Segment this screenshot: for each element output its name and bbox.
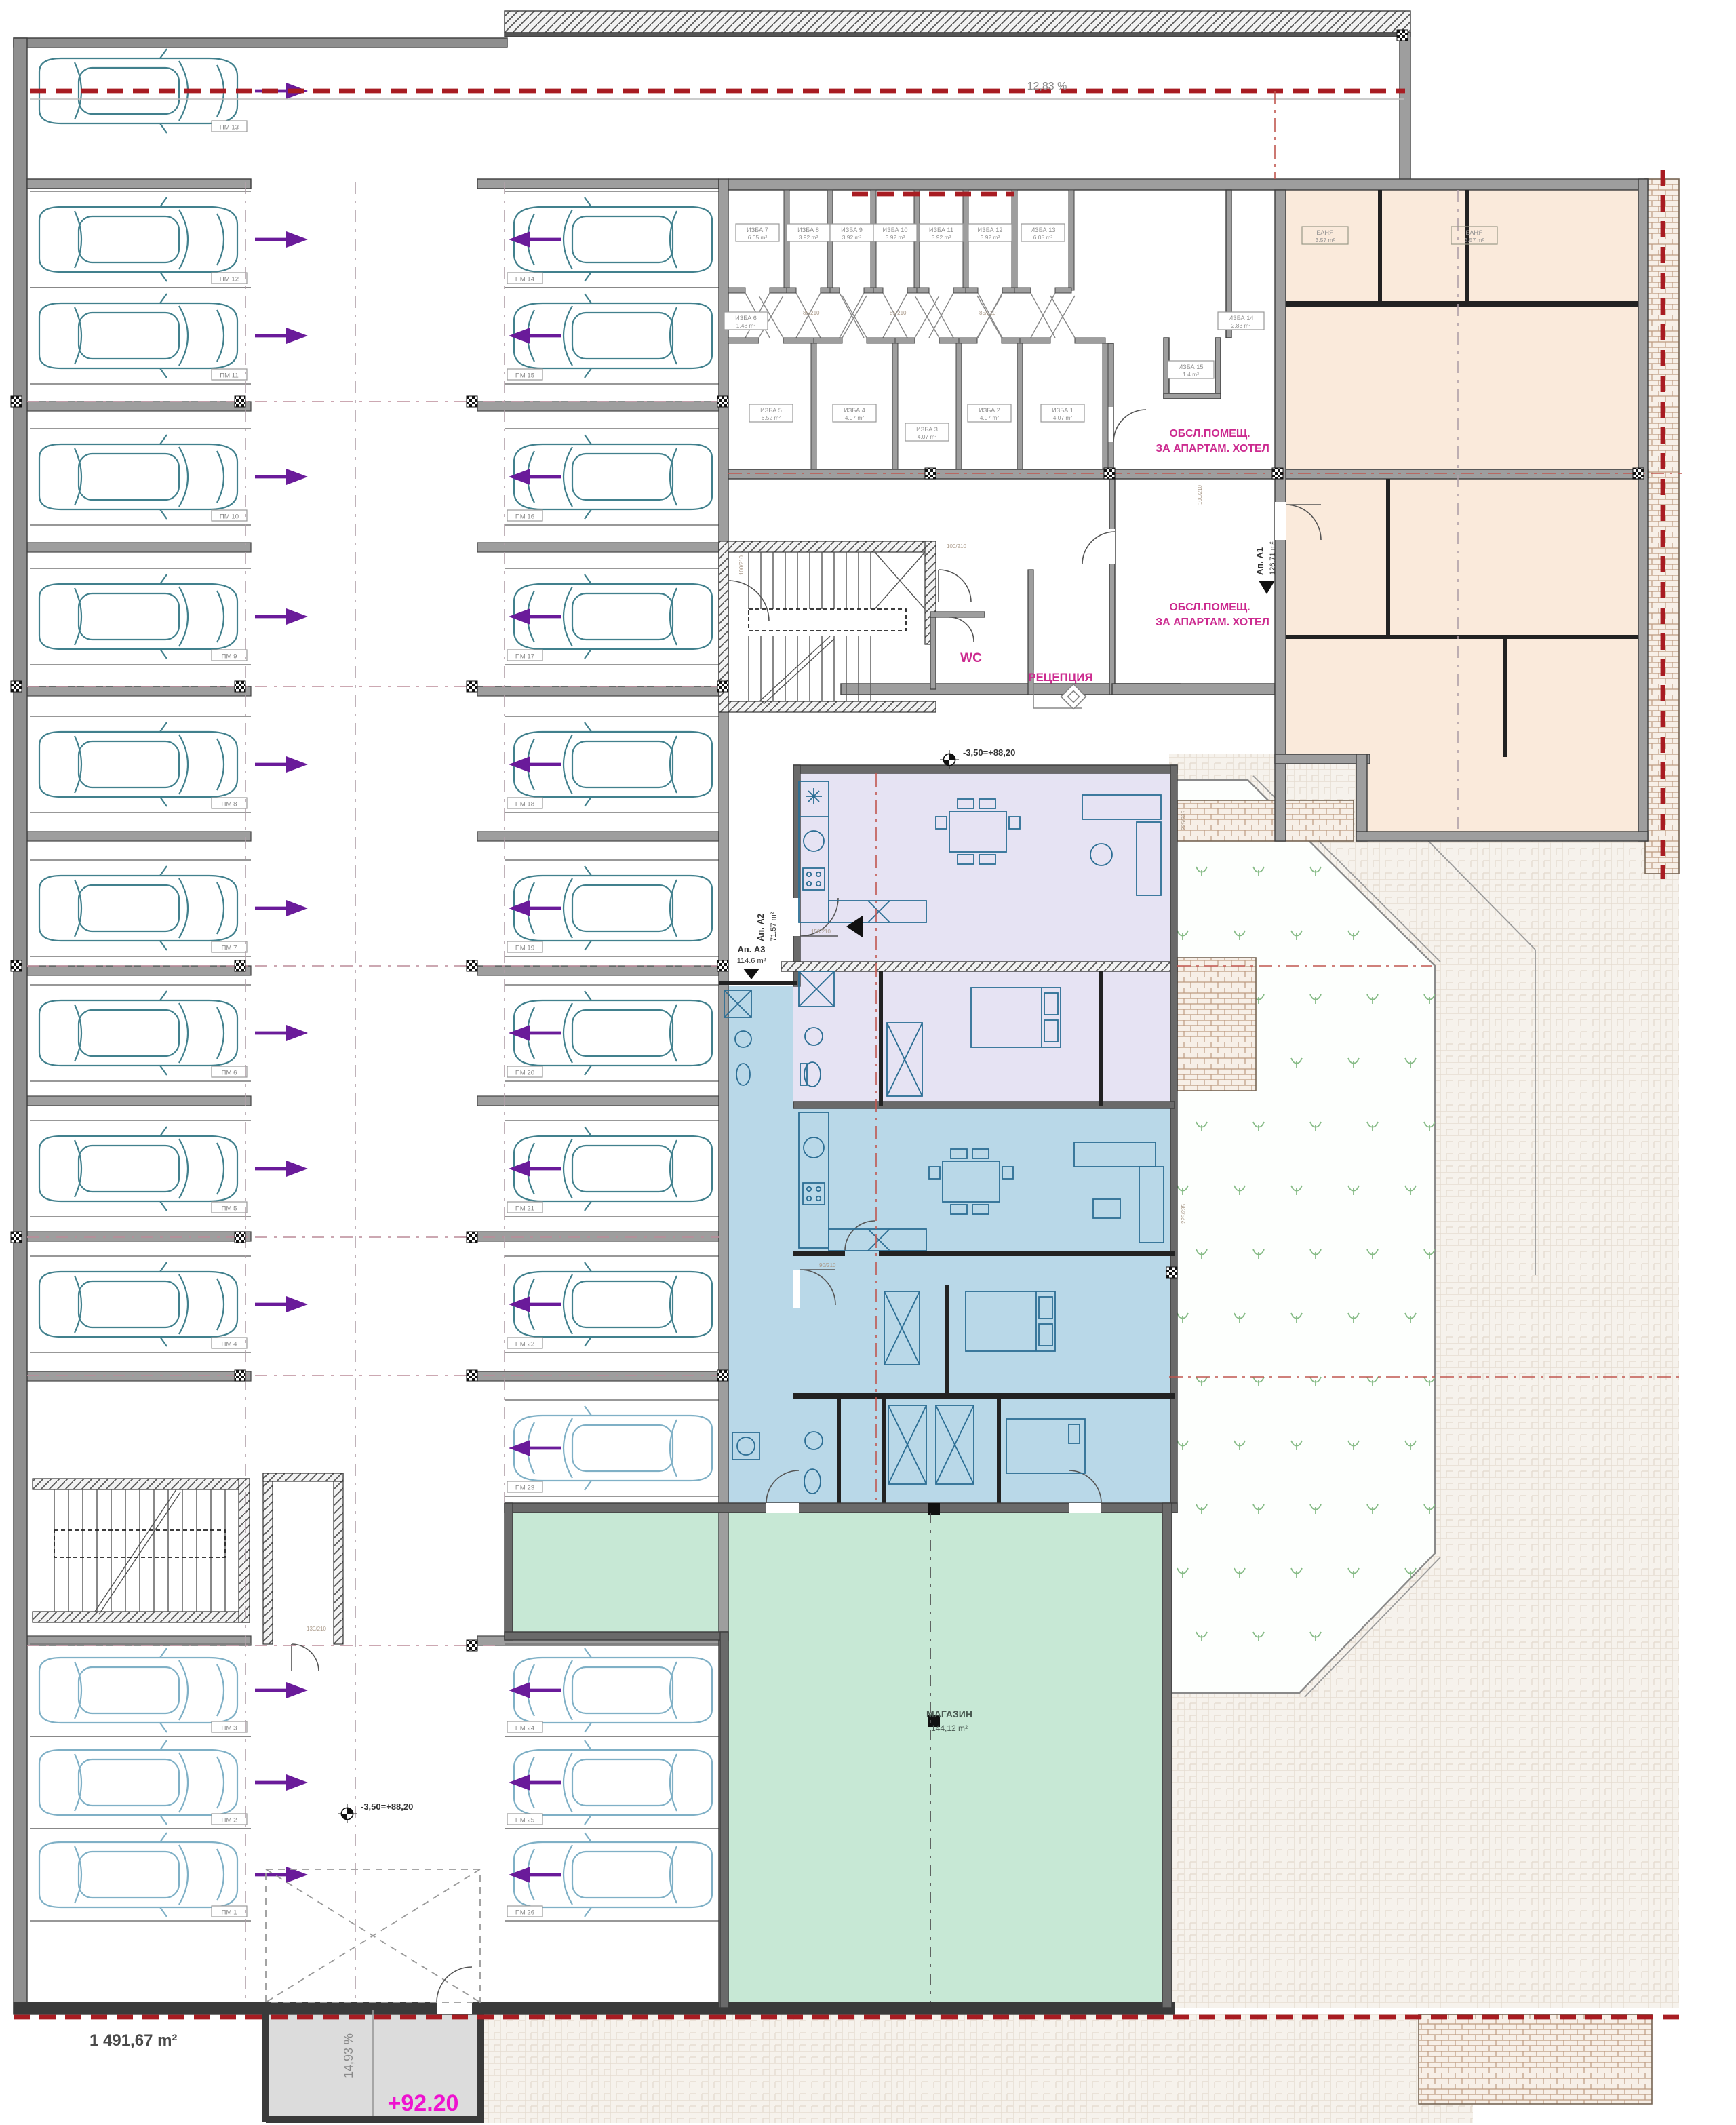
stall-label: ПМ 1 (222, 1909, 237, 1916)
a1-extension-south-wall (1356, 832, 1648, 841)
a2-a3-divider-wall (793, 1102, 1175, 1108)
stall-label: ПМ 3 (222, 1724, 237, 1732)
stall-label: ПМ 26 (515, 1909, 534, 1916)
brick-patch-3 (1419, 2014, 1652, 2104)
apartment-a1-bottom-wall (1275, 754, 1370, 764)
slope-top-label: 12,83 % (1027, 81, 1067, 92)
ramp-top-wall-edge (505, 33, 1410, 37)
garage-wall-stub (27, 402, 251, 411)
storage-wall (814, 338, 842, 343)
storage-wall (1012, 190, 1017, 290)
storage-wall (770, 288, 787, 293)
izba15-wall-right (1215, 338, 1221, 399)
storage-room-area: 3.92 m² (886, 234, 905, 241)
storage-room-area: 4.07 m² (980, 414, 1000, 421)
storage-wall (1002, 338, 1020, 343)
stall-label: ПМ 13 (220, 123, 239, 131)
apartment-a1-extension-fill (1364, 757, 1640, 833)
svg-text:130/210: 130/210 (307, 1626, 326, 1632)
street-level-label: +92.20 (388, 2090, 459, 2116)
apartment-a1-area: 126.71 m² (1269, 541, 1277, 575)
shop-column-top (928, 1503, 940, 1515)
storage-room-area: 3.92 m² (932, 234, 951, 241)
svg-text:225/235: 225/235 (1181, 1204, 1187, 1224)
slope-bottom-label: 14,93 % (342, 2033, 355, 2078)
garage-wall-stub (27, 686, 251, 696)
brick-patch-1 (1177, 800, 1354, 841)
storage-room-area: 4.07 m² (918, 433, 937, 440)
garage-wall-stub (27, 966, 251, 975)
svg-text:100/210: 100/210 (1197, 485, 1203, 505)
stall-label: ПМ 12 (220, 275, 239, 283)
garage-wall-stub (477, 686, 719, 696)
storage-wall (966, 288, 978, 293)
storage-room-name: ИЗБА 5 (760, 407, 782, 414)
garage-wall-stub (27, 832, 251, 841)
apartment-a3-area: 114.6 m² (737, 957, 766, 965)
storage-wall (821, 288, 830, 293)
apartment-a2-area: 71.57 m² (770, 912, 778, 941)
stall-label: ПМ 15 (515, 372, 534, 379)
storage-room-name: ИЗБА 12 (978, 227, 1003, 233)
ramp-top-hatched-wall (505, 11, 1410, 33)
svg-text:85/210: 85/210 (979, 310, 996, 316)
garage-wall-stub (477, 832, 719, 841)
apartment-a3-name: Ап. А3 (737, 944, 765, 954)
stall-label: ПМ 4 (222, 1340, 238, 1348)
storage-wall (728, 338, 759, 343)
storage-wall (892, 343, 898, 469)
wall-ramp-right (1400, 33, 1410, 182)
apartment-a1-name: Ап. А1 (1255, 547, 1265, 575)
garage-wall-stub (477, 966, 719, 975)
garage-wall-stub (477, 543, 719, 552)
storage-wall (895, 338, 915, 343)
garage-wall-stub (477, 402, 719, 411)
storage-wall (959, 338, 977, 343)
garage-wall-stub (477, 1096, 719, 1106)
storage-room-area: 3.92 m² (842, 234, 862, 241)
storage-room-name: ИЗБА 1 (1052, 407, 1073, 414)
brick-patch-2 (1177, 958, 1256, 1091)
stall-label: ПМ 14 (515, 275, 535, 283)
storage-room-area: 6.05 m² (1033, 234, 1053, 241)
svg-text:ИЗБА 15: ИЗБА 15 (1179, 364, 1204, 370)
shop-west-wall (720, 1632, 728, 2008)
storage-room-area: 4.07 m² (845, 414, 865, 421)
stall-label: ПМ 24 (515, 1724, 535, 1732)
garage-wall-stub (27, 1096, 251, 1106)
apartment-a2-name: Ап. А2 (755, 914, 766, 941)
garage-wall-stub (27, 1371, 251, 1381)
storage-room-name: ИЗБА 2 (979, 407, 1000, 414)
apartment-a2-mid-hatched-wall (781, 962, 1177, 971)
stall-label: ПМ 8 (222, 800, 237, 808)
svg-text:ИЗБА 14: ИЗБА 14 (1229, 315, 1254, 321)
storage-wall (1069, 190, 1074, 290)
stall-label: ПМ 16 (515, 513, 534, 520)
storage-wall (1002, 288, 1014, 293)
storage-room-name: ИЗБА 4 (844, 407, 865, 414)
storage-room-name: ИЗБА 3 (916, 426, 938, 433)
svg-text:85/210: 85/210 (803, 310, 820, 316)
svg-text:225/235: 225/235 (1181, 811, 1187, 830)
storage-wall (953, 288, 966, 293)
storage-room-area: 3.92 m² (799, 234, 818, 241)
svg-text:БАНЯ: БАНЯ (1316, 229, 1333, 236)
svg-text:3.57 m²: 3.57 m² (1316, 237, 1335, 243)
apartment-east-wall (1170, 765, 1177, 1513)
storage-wall (867, 338, 895, 343)
shop-name-label: МАГАЗИН (926, 1709, 972, 1719)
storage-wall (907, 288, 917, 293)
level-mark-2-text: -3,50=+88,20 (361, 1801, 413, 1812)
svg-text:1.48 m²: 1.48 m² (736, 322, 756, 329)
storage-wall (1055, 288, 1071, 293)
stall-label: ПМ 11 (220, 372, 239, 379)
storage-wall (728, 288, 745, 293)
garage-wall-stub (477, 1371, 719, 1381)
stall-label: ПМ 20 (515, 1069, 534, 1076)
stall-label: ПМ 22 (515, 1340, 534, 1348)
storage-room-name: ИЗБА 7 (747, 227, 768, 233)
outer-wall-top-left (14, 38, 507, 47)
stall-label: ПМ 17 (515, 652, 534, 660)
svg-text:90/210: 90/210 (819, 1262, 836, 1268)
apartment-a2-fill (793, 771, 1175, 1106)
reception-label: РЕЦЕПЦИЯ (1028, 671, 1093, 684)
izba15-wall-bottom (1164, 393, 1221, 399)
stall-label: ПМ 25 (515, 1816, 534, 1824)
service-room1-label-line1: ОБСЛ.ПОМЕЩ. (1169, 428, 1250, 440)
storage-room-name: ИЗБА 13 (1031, 227, 1056, 233)
storage-wall (917, 288, 929, 293)
svg-text:1.4 m²: 1.4 m² (1183, 371, 1199, 378)
building-top-wall (728, 179, 1648, 190)
storage-wall (1075, 338, 1105, 343)
storage-room-name: ИЗБА 8 (797, 227, 819, 233)
storage-wall (1103, 343, 1108, 469)
storage-wall (1014, 288, 1031, 293)
service-room2-label-line2: ЗА АПАРТАМ. ХОТЕЛ (1156, 617, 1269, 628)
svg-text:3.57 m²: 3.57 m² (1465, 237, 1484, 243)
svg-text:85/210: 85/210 (890, 310, 907, 316)
storage-wall (811, 343, 816, 469)
storage-room-area: 6.05 m² (748, 234, 768, 241)
apartment-a1-east-wall (1638, 179, 1648, 841)
stall-label: ПМ 7 (222, 944, 237, 952)
wc-label: WC (960, 651, 982, 665)
service2-bottom-wall (1112, 684, 1275, 695)
floor-plan-drawing: ПМ 13ПМ 12ПМ 11ПМ 10ПМ 9ПМ 8ПМ 7ПМ 6ПМ 5… (0, 0, 1736, 2125)
shop-leg-bottom-wall (505, 1632, 728, 1640)
shop-leg-west-wall (505, 1503, 513, 1640)
stall-label: ПМ 6 (222, 1069, 237, 1076)
svg-text:2.83 m²: 2.83 m² (1231, 322, 1251, 329)
storage-wall (873, 288, 883, 293)
service-room2-label-line1: ОБСЛ.ПОМЕЩ. (1169, 602, 1250, 613)
garage-north-wall-left (27, 179, 251, 189)
svg-text:БАНЯ: БАНЯ (1465, 229, 1482, 236)
storage-wall (783, 338, 814, 343)
storage-room-name: ИЗБА 11 (929, 227, 953, 233)
garage-north-wall-middle (477, 179, 719, 189)
stall-label: ПМ 18 (515, 800, 534, 808)
stall-label: ПМ 23 (515, 1484, 534, 1492)
stall-label: ПМ 5 (222, 1205, 237, 1212)
stall-label: ПМ 10 (220, 513, 239, 520)
paving-area-bottom (483, 2014, 1473, 2123)
storage-wall (830, 288, 840, 293)
level-mark-1-text: -3,50=+88,20 (963, 747, 1015, 758)
storage-room-name: ИЗБА 10 (883, 227, 908, 233)
svg-text:ИЗБА 6: ИЗБА 6 (735, 315, 757, 321)
stall-label: ПМ 21 (515, 1205, 534, 1212)
storage-wall (963, 190, 968, 290)
storage-room-area: 3.92 m² (981, 234, 1000, 241)
storage-wall (1020, 338, 1050, 343)
storage-wall (939, 338, 959, 343)
storage-room-area: 4.07 m² (1053, 414, 1073, 421)
svg-text:150/210: 150/210 (811, 929, 831, 935)
outer-wall-left (14, 38, 27, 2013)
storage-room-area: 6.52 m² (762, 414, 781, 421)
svg-text:100/210: 100/210 (738, 555, 745, 575)
garage-wall-stub (477, 1232, 719, 1241)
service2-wall (1109, 479, 1115, 695)
stall-label: ПМ 9 (222, 652, 237, 660)
storage-wall (956, 343, 962, 469)
storage-wall (864, 288, 873, 293)
stall-label: ПМ 19 (515, 944, 534, 952)
shop-area-label: 144,12 m² (931, 1723, 968, 1733)
total-area-label: 1 491,67 m² (90, 2031, 177, 2050)
storage-bottom-wall (728, 469, 1648, 479)
svg-text:100/210: 100/210 (947, 543, 966, 549)
storage-wall (787, 288, 796, 293)
outer-wall-bottom (14, 2002, 1175, 2014)
stall-label: ПМ 2 (222, 1816, 237, 1824)
shop-east-wall (1162, 1503, 1172, 2008)
service-room1-label-line2: ЗА АПАРТАМ. ХОТЕЛ (1156, 443, 1269, 454)
a1-extension-west-wall (1356, 754, 1367, 841)
garage-wall-stub (27, 1232, 251, 1241)
apartment-a2-top-wall (793, 765, 1177, 773)
storage-room-name: ИЗБА 9 (841, 227, 863, 233)
storage-wall (1017, 343, 1023, 469)
garage-wall-stub (27, 543, 251, 552)
